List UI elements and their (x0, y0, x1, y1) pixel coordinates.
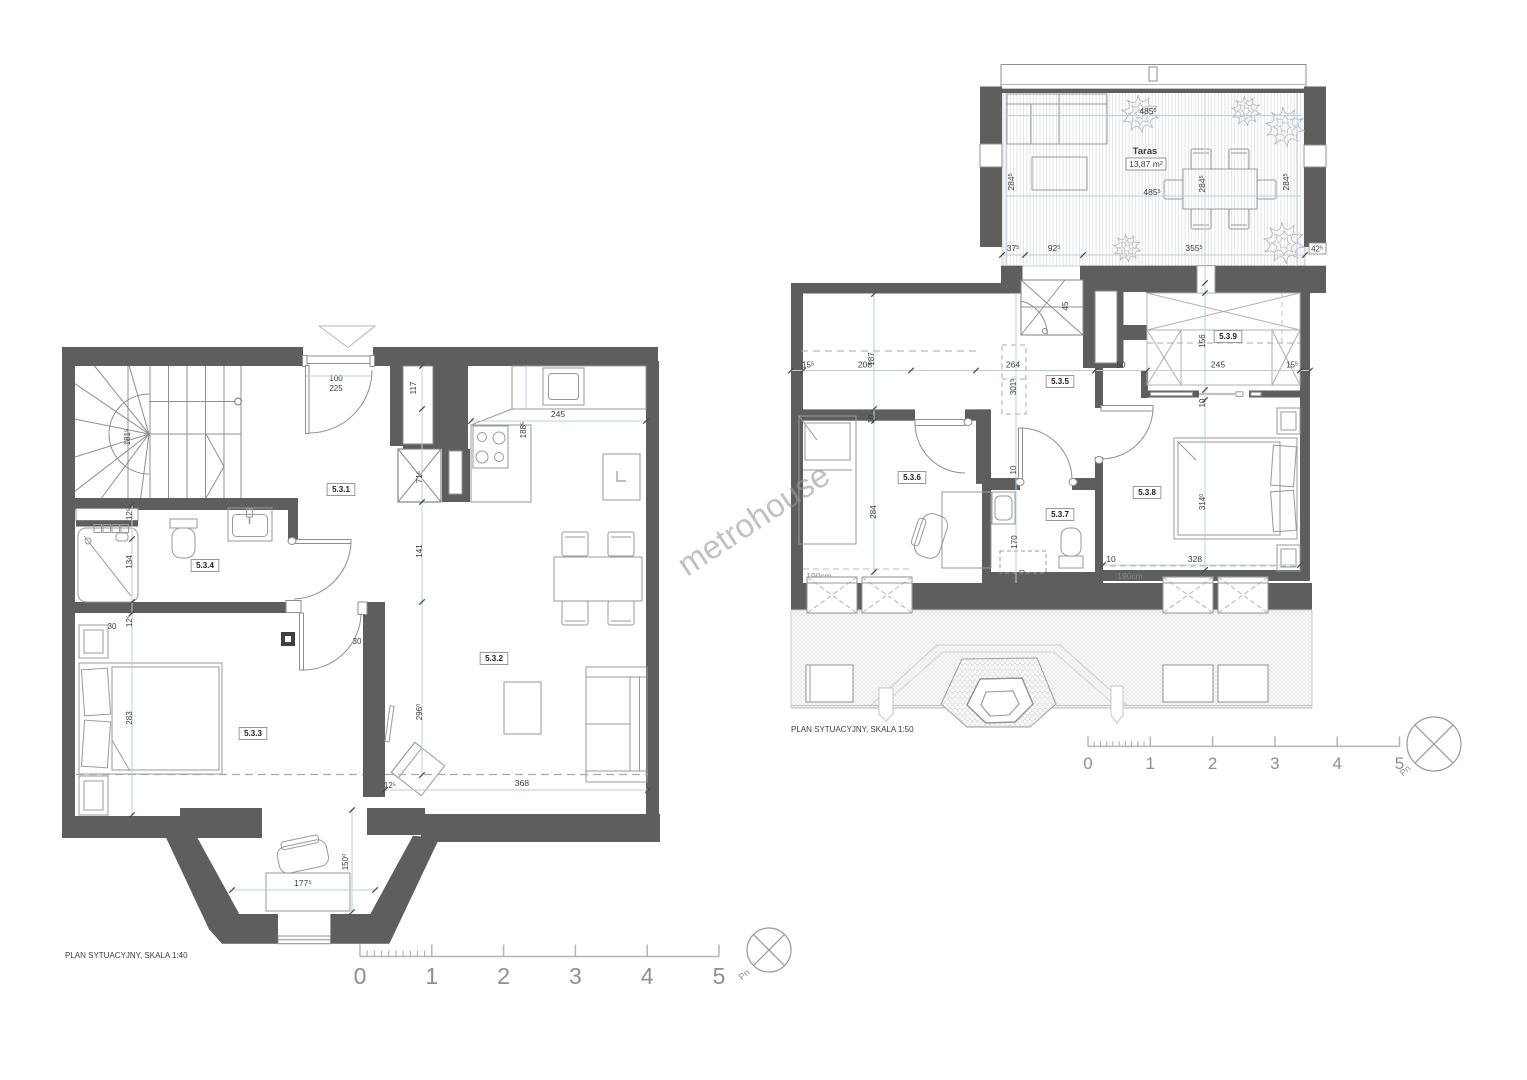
svg-text:100: 100 (329, 374, 343, 383)
svg-text:50: 50 (1117, 361, 1126, 370)
svg-text:5.3.3: 5.3.3 (244, 729, 262, 738)
svg-text:181⁵: 181⁵ (123, 429, 132, 446)
svg-text:PLAN SYTUACYJNY, SKALA 1:50: PLAN SYTUACYJNY, SKALA 1:50 (791, 725, 914, 734)
svg-text:10: 10 (1106, 554, 1116, 564)
svg-text:30: 30 (108, 622, 117, 631)
svg-text:PLAN SYTUACYJNY, SKALA 1:40: PLAN SYTUACYJNY, SKALA 1:40 (65, 951, 188, 960)
svg-text:0: 0 (1083, 754, 1092, 773)
svg-text:3: 3 (569, 963, 582, 989)
svg-text:283: 283 (125, 711, 134, 725)
svg-text:225: 225 (329, 384, 343, 393)
svg-text:13,87 m2: 13,87 m2 (1129, 159, 1163, 169)
svg-text:P: P (1019, 569, 1026, 580)
svg-text:156: 156 (1198, 334, 1207, 348)
svg-text:264: 264 (1006, 360, 1020, 370)
svg-text:4: 4 (641, 963, 654, 989)
svg-text:134: 134 (125, 555, 134, 569)
svg-text:5.3.6: 5.3.6 (903, 473, 921, 482)
svg-text:10: 10 (1009, 465, 1018, 474)
svg-text:12⁵: 12⁵ (384, 781, 396, 790)
svg-text:10: 10 (1198, 398, 1207, 407)
svg-text:5.3.1: 5.3.1 (332, 485, 350, 494)
svg-text:71⁵: 71⁵ (415, 471, 424, 483)
svg-text:10: 10 (867, 414, 876, 423)
svg-text:45: 45 (1061, 301, 1070, 310)
svg-text:0: 0 (354, 963, 367, 989)
svg-text:5.3.7: 5.3.7 (1051, 510, 1069, 519)
svg-text:284: 284 (869, 505, 878, 519)
svg-text:368: 368 (515, 778, 529, 788)
svg-text:245: 245 (551, 409, 565, 419)
svg-text:5.3.2: 5.3.2 (485, 654, 503, 663)
svg-text:1: 1 (1146, 754, 1155, 773)
svg-text:141: 141 (415, 544, 424, 558)
svg-text:328: 328 (1188, 554, 1202, 564)
svg-text:5.3.4: 5.3.4 (196, 561, 214, 570)
svg-text:296⁰: 296⁰ (415, 704, 424, 721)
svg-text:5.3.9: 5.3.9 (1219, 332, 1237, 341)
svg-text:245: 245 (1211, 360, 1225, 370)
svg-text:188⁵: 188⁵ (519, 422, 528, 439)
svg-text:170: 170 (1010, 535, 1019, 549)
svg-text:5.3.5: 5.3.5 (1051, 377, 1069, 386)
svg-text:5.3.8: 5.3.8 (1138, 488, 1156, 497)
svg-text:1: 1 (425, 963, 438, 989)
svg-text:Taras: Taras (1133, 146, 1158, 157)
svg-text:150⁰: 150⁰ (341, 854, 350, 871)
svg-text:2: 2 (1208, 754, 1217, 773)
svg-text:5: 5 (713, 963, 726, 989)
svg-text:2: 2 (497, 963, 510, 989)
svg-text:190cm: 190cm (1117, 571, 1143, 581)
svg-text:12⁵: 12⁵ (125, 615, 134, 627)
svg-text:187: 187 (867, 352, 876, 366)
svg-text:4: 4 (1332, 754, 1341, 773)
svg-text:3: 3 (1270, 754, 1279, 773)
svg-text:30: 30 (353, 637, 362, 646)
svg-text:12⁵: 12⁵ (125, 508, 134, 520)
svg-text:117: 117 (409, 381, 418, 394)
svg-text:177⁵: 177⁵ (294, 878, 312, 888)
